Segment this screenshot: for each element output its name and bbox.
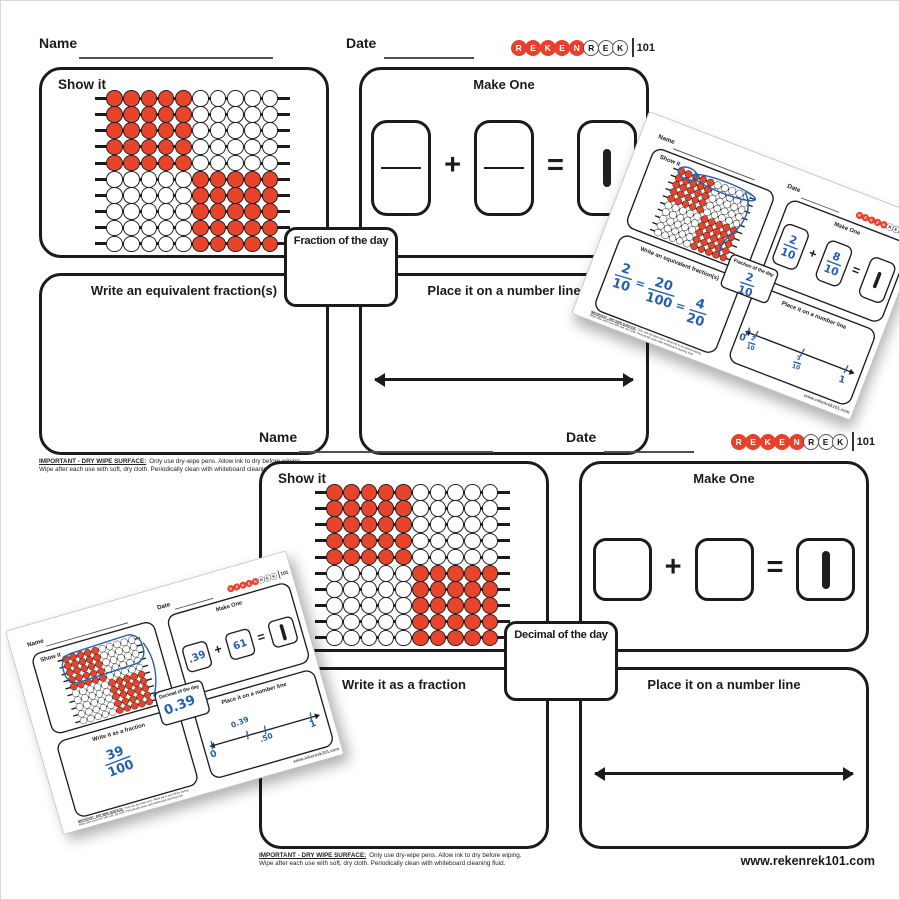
one-box [796,538,855,601]
red-bead [343,484,360,501]
red-bead [158,122,175,139]
white-bead [464,549,481,566]
white-bead [244,139,261,156]
white-bead [244,106,261,123]
white-bead [158,171,175,188]
red-bead [361,500,378,517]
white-bead [447,533,464,550]
name-write-line [299,451,493,453]
bead-row [326,597,499,613]
white-bead [141,187,158,204]
red-bead [412,614,429,631]
fraction-box-2 [474,120,534,216]
handwritten-fraction: 20100 [644,274,679,310]
red-bead [343,533,360,550]
bead-row [106,220,279,236]
red-bead [141,139,158,156]
logo-divider [632,38,634,57]
red-bead [262,236,279,253]
red-bead [244,171,261,188]
date-label: Date [346,35,376,51]
white-bead [227,122,244,139]
logo-number: 101 [280,569,289,576]
red-bead [395,500,412,517]
red-bead [141,106,158,123]
rekenrek-grid [106,90,279,252]
white-bead [464,484,481,501]
white-bead [175,171,192,188]
red-bead [210,220,227,237]
decimal-box-1 [593,538,652,601]
white-bead [326,565,343,582]
red-bead [326,516,343,533]
white-bead [464,500,481,517]
white-bead [430,500,447,517]
rekenrek-grid [326,484,499,646]
red-bead [447,581,464,598]
red-bead [192,171,209,188]
bead-row [106,155,279,171]
white-bead [210,122,227,139]
white-bead [447,516,464,533]
red-bead [326,533,343,550]
equals-sign: = [547,151,564,184]
white-bead [106,236,123,253]
number-line-label: Place it on a number line [582,677,866,692]
red-bead [395,549,412,566]
white-bead [378,614,395,631]
white-bead [192,106,209,123]
number-line-value: 0.39 [230,716,250,730]
decimal-box-2 [695,538,754,601]
white-bead [141,203,158,220]
red-bead [106,122,123,139]
red-bead [123,139,140,156]
red-bead [227,236,244,253]
red-bead [378,500,395,517]
red-bead [447,565,464,582]
decimal-box-1: .39 [181,640,214,674]
fraction-box-1 [371,120,431,216]
red-bead [123,155,140,172]
bead-row [326,614,499,630]
fraction-of-the-day-box: Fraction of the day [284,227,398,307]
white-bead [361,614,378,631]
fraction-box-1: 210 [770,222,811,272]
red-bead [106,155,123,172]
white-bead [412,484,429,501]
bead-row [326,630,499,646]
white-bead [158,236,175,253]
bead-row [326,581,499,597]
red-bead [326,484,343,501]
red-bead [430,614,447,631]
red-bead [447,597,464,614]
red-bead [464,630,481,647]
logo-letter: E [554,40,570,56]
red-bead [361,533,378,550]
white-bead [395,581,412,598]
white-bead [192,155,209,172]
show-it-panel: Show it [39,67,329,258]
white-bead [447,549,464,566]
white-bead [210,90,227,107]
white-bead [343,581,360,598]
rekenrek101-logo: REKENREK101 [512,38,655,57]
bead-row [106,90,279,106]
red-bead [175,90,192,107]
white-bead [378,581,395,598]
white-bead [106,220,123,237]
red-bead [123,106,140,123]
white-bead [378,565,395,582]
white-bead [447,484,464,501]
red-bead [210,187,227,204]
white-bead [227,139,244,156]
white-bead [464,533,481,550]
logo-letter: K [269,572,278,581]
one-mark [872,271,881,288]
number-line-mid: .50 [259,732,274,744]
red-bead [430,581,447,598]
decimal-worksheet: Name Date REKENREK101 Show it Make One +… [221,395,881,873]
red-bead [430,597,447,614]
one-box [267,615,300,649]
make-one-panel: Make One + = [579,461,869,652]
red-bead [464,565,481,582]
white-bead [262,139,279,156]
logo-letter: E [745,434,761,450]
red-bead [210,171,227,188]
number-line-one: 1 [308,718,317,729]
red-bead [175,106,192,123]
rekenrek101-logo: REKENREK101 [732,432,875,451]
white-bead [210,139,227,156]
bead-row [106,139,279,155]
white-bead [378,597,395,614]
white-bead [123,220,140,237]
date-write-line [384,57,474,59]
white-bead [123,171,140,188]
white-bead [482,500,499,517]
number-line-arrow [375,378,633,381]
red-bead [482,630,499,647]
handwritten-decimal: 61 [231,637,248,653]
handwritten-fraction: 39100 [100,742,135,779]
red-bead [106,106,123,123]
white-bead [430,516,447,533]
handwritten-fraction: 810 [822,249,845,278]
logo-letter: E [525,40,541,56]
red-bead [482,597,499,614]
logo-letter: K [612,40,628,56]
white-bead [141,220,158,237]
white-bead [326,614,343,631]
fraction-bar [381,167,421,169]
red-bead [244,220,261,237]
red-bead [158,106,175,123]
red-bead [227,220,244,237]
bead-row [326,500,499,516]
red-bead [175,122,192,139]
red-bead [378,549,395,566]
white-bead [244,90,261,107]
red-bead [106,90,123,107]
white-bead [262,90,279,107]
white-bead [361,565,378,582]
white-bead [412,549,429,566]
red-bead [361,516,378,533]
bead-row [326,549,499,565]
white-bead [158,220,175,237]
show-it-label: Show it [58,77,106,92]
red-bead [430,565,447,582]
pen-annotation [57,629,166,726]
white-bead [361,581,378,598]
white-bead [141,171,158,188]
red-bead [326,549,343,566]
red-bead [326,500,343,517]
red-bead [175,139,192,156]
one-mark [822,551,830,589]
white-bead [412,516,429,533]
plus-sign: + [444,151,461,184]
red-bead [482,565,499,582]
website-url: www.rekenrek101.com [741,854,875,868]
red-bead [343,500,360,517]
white-bead [361,597,378,614]
red-bead [378,484,395,501]
red-bead [123,122,140,139]
date-label: Date [786,182,801,194]
white-bead [106,187,123,204]
red-bead [158,139,175,156]
bead-row [106,236,279,252]
white-bead [192,90,209,107]
plus-sign: + [665,553,682,586]
red-bead [412,565,429,582]
white-bead [395,614,412,631]
white-bead [361,630,378,647]
red-bead [227,203,244,220]
logo-letter: R [803,434,819,450]
number-line-arrow [595,772,853,775]
red-bead [361,549,378,566]
white-bead [227,106,244,123]
red-bead [262,171,279,188]
red-bead [141,90,158,107]
red-bead [210,203,227,220]
fraction-of-the-day-label: Fraction of the day [287,235,395,247]
white-bead [192,122,209,139]
care-instructions-heading: IMPORTANT - DRY WIPE SURFACE: [39,458,146,465]
name-write-line [79,57,273,59]
bead-row [106,203,279,219]
white-bead [158,187,175,204]
fraction-bar [484,167,524,169]
white-bead [262,106,279,123]
white-bead [244,122,261,139]
one-box [857,255,898,305]
bead-row [326,533,499,549]
number-line-panel: Place it on a number line [579,667,869,849]
red-bead [395,484,412,501]
white-bead [412,500,429,517]
white-bead [210,155,227,172]
red-bead [262,220,279,237]
make-one-equation: + = [582,464,866,649]
white-bead [343,630,360,647]
number-line-one: 1 [838,374,847,385]
number-line-zero: 0 [209,749,218,760]
handwritten-decimal: .39 [186,648,207,665]
decimal-of-the-day-label: Decimal of the day [507,629,615,641]
handwritten-fraction: 420 [685,295,711,329]
white-bead [262,155,279,172]
white-bead [227,155,244,172]
white-bead [343,565,360,582]
bead-row [326,565,499,581]
name-label: Name [259,429,297,445]
white-bead [412,533,429,550]
red-bead [141,122,158,139]
red-bead [158,90,175,107]
white-bead [430,484,447,501]
red-bead [464,614,481,631]
white-bead [326,581,343,598]
red-bead [262,203,279,220]
white-bead [326,630,343,647]
name-label: Name [26,637,44,648]
white-bead [343,614,360,631]
white-bead [482,516,499,533]
handwritten-fraction: 210 [779,232,802,261]
red-bead [464,581,481,598]
red-bead [244,236,261,253]
equals-sign: = [849,263,861,280]
bead-row [106,187,279,203]
white-bead [378,630,395,647]
care-instructions: IMPORTANT - DRY WIPE SURFACE:Only use dr… [259,852,522,868]
equals-sign: = [767,553,784,586]
plus-sign: + [213,643,224,659]
red-bead [447,630,464,647]
care-instructions-text1: Only use dry-wipe pens. Allow ink to dry… [369,852,521,859]
white-bead [175,187,192,204]
red-bead [158,155,175,172]
plus-sign: + [806,247,818,264]
white-bead [447,500,464,517]
logo-letter: K [832,434,848,450]
one-mark [603,149,611,187]
number-line-fraction: 510 [791,354,803,371]
red-bead [141,155,158,172]
decimal-box-2: 61 [224,628,257,662]
white-bead [175,220,192,237]
white-bead [192,139,209,156]
date-label: Date [156,600,171,610]
red-bead [412,597,429,614]
white-bead [395,630,412,647]
red-bead [482,614,499,631]
logo-divider [852,432,854,451]
red-bead [227,171,244,188]
fraction-box-2: 810 [814,238,855,288]
red-bead [395,516,412,533]
white-bead [123,187,140,204]
white-bead [210,106,227,123]
logo-letter: E [774,434,790,450]
red-bead [430,630,447,647]
show-it-label: Show it [278,471,326,486]
red-bead [378,516,395,533]
equals-sign: = [256,630,267,646]
red-bead [192,220,209,237]
red-bead [175,155,192,172]
number-line-zero: 0 [738,332,747,343]
red-bead [464,597,481,614]
red-bead [244,187,261,204]
logo-number: 101 [637,42,655,54]
red-bead [412,630,429,647]
white-bead [158,203,175,220]
red-bead [106,139,123,156]
product-image: Name Date REKENREK101 Show it Make One +… [0,0,900,900]
white-bead [482,484,499,501]
white-bead [430,533,447,550]
white-bead [262,122,279,139]
red-bead [262,187,279,204]
white-bead [482,533,499,550]
white-bead [123,203,140,220]
red-bead [343,549,360,566]
bead-row [106,106,279,122]
white-bead [244,155,261,172]
bead-row [106,122,279,138]
bead-row [326,516,499,532]
white-bead [395,565,412,582]
white-bead [106,203,123,220]
name-label: Name [657,133,676,146]
red-bead [227,187,244,204]
red-bead [361,484,378,501]
one-mark [279,624,287,641]
white-bead [343,597,360,614]
white-bead [106,171,123,188]
white-bead [430,549,447,566]
red-bead [343,516,360,533]
bead-row [326,484,499,500]
white-bead [123,236,140,253]
red-bead [482,581,499,598]
white-bead [141,236,158,253]
white-bead [395,597,412,614]
bead-row [106,171,279,187]
red-bead [192,236,209,253]
care-instructions-heading: IMPORTANT - DRY WIPE SURFACE: [259,852,366,859]
date-label: Date [566,429,596,445]
care-instructions-text2: Wipe after each use with soft, dry cloth… [259,860,505,867]
red-bead [378,533,395,550]
red-bead [192,187,209,204]
white-bead [227,90,244,107]
red-bead [123,90,140,107]
number-line-fraction: 210 [746,335,758,352]
white-bead [482,549,499,566]
logo-number: 101 [857,436,875,448]
white-bead [464,516,481,533]
white-bead [175,236,192,253]
